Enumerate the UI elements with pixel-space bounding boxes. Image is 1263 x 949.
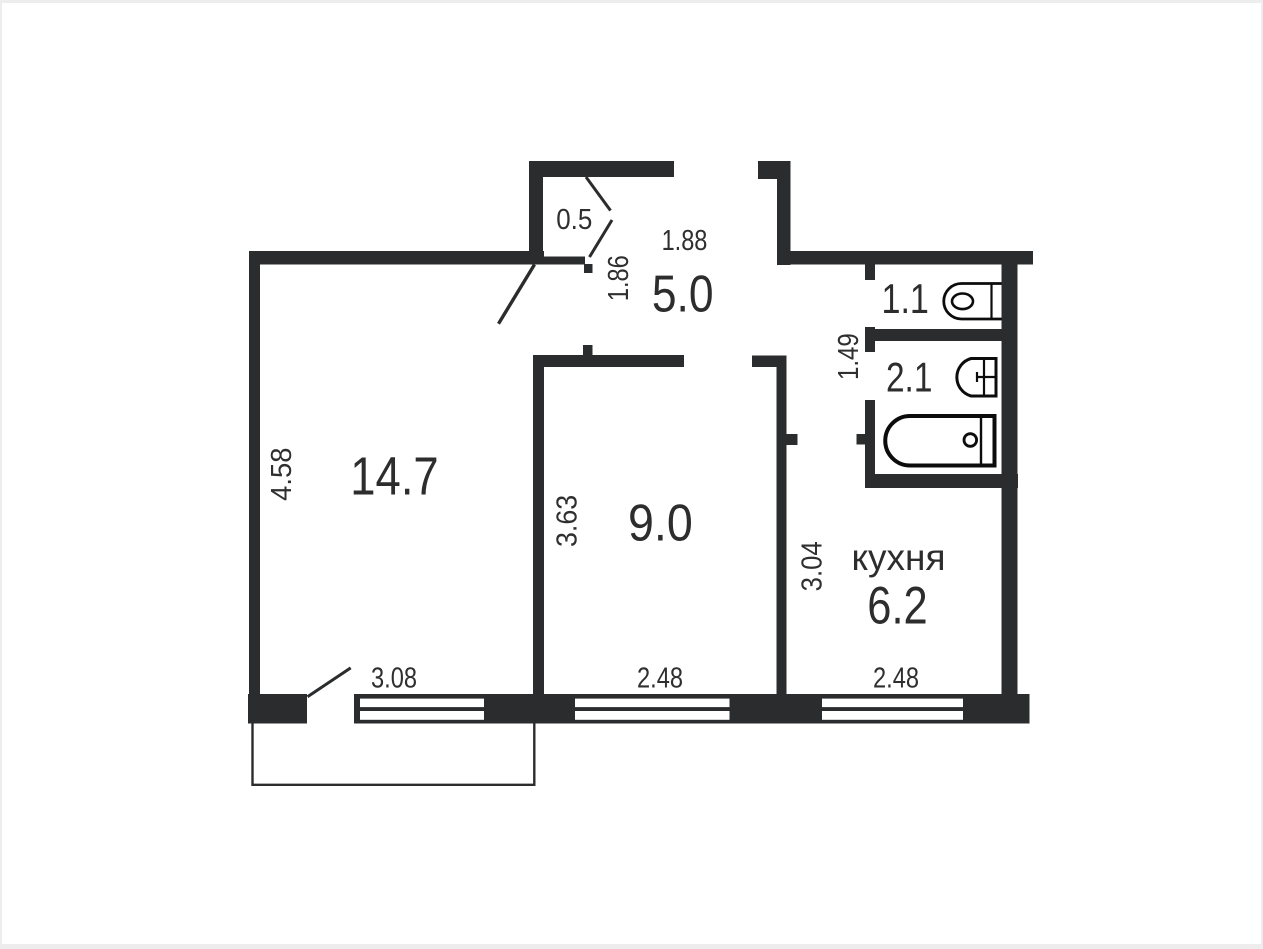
svg-text:5.0: 5.0 [652, 265, 714, 323]
svg-text:кухня: кухня [851, 537, 945, 578]
svg-text:1.1: 1.1 [882, 275, 929, 322]
svg-text:3.04: 3.04 [797, 541, 829, 591]
svg-text:6.2: 6.2 [867, 577, 927, 636]
svg-text:3.08: 3.08 [371, 663, 417, 695]
svg-text:1.88: 1.88 [662, 225, 708, 257]
svg-text:2.48: 2.48 [873, 663, 919, 695]
svg-text:1.86: 1.86 [603, 255, 635, 301]
svg-text:1.49: 1.49 [833, 333, 865, 380]
svg-text:3.63: 3.63 [552, 495, 584, 547]
svg-text:9.0: 9.0 [628, 495, 693, 553]
svg-text:0.5: 0.5 [556, 204, 592, 236]
svg-text:2.48: 2.48 [637, 663, 683, 695]
svg-text:2.1: 2.1 [886, 353, 933, 400]
svg-text:4.58: 4.58 [266, 448, 298, 501]
svg-text:14.7: 14.7 [350, 447, 438, 507]
